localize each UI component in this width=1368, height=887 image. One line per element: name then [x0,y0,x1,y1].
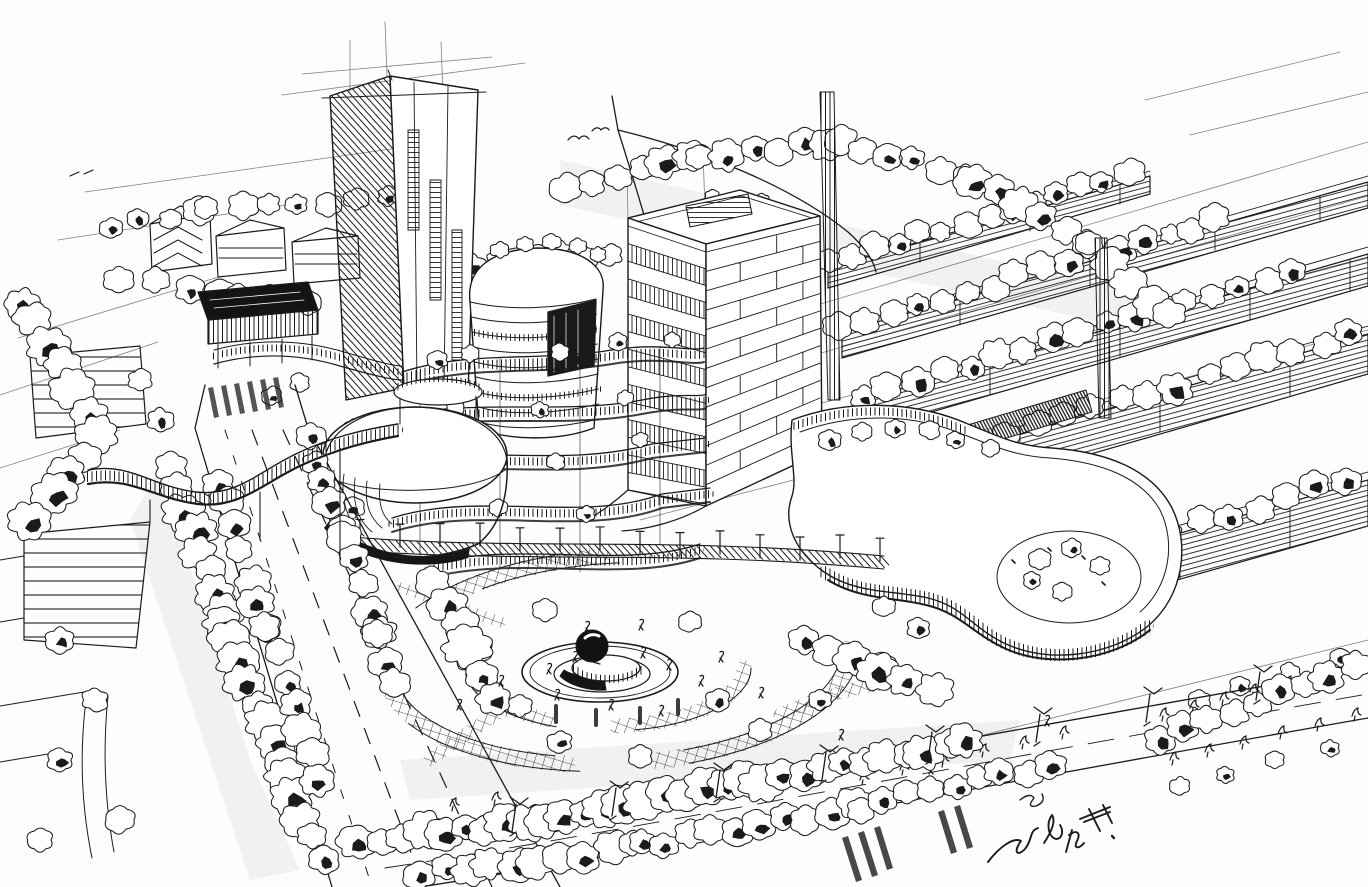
sketch-canvas [0,0,1368,887]
urban-sketch [0,0,1368,887]
